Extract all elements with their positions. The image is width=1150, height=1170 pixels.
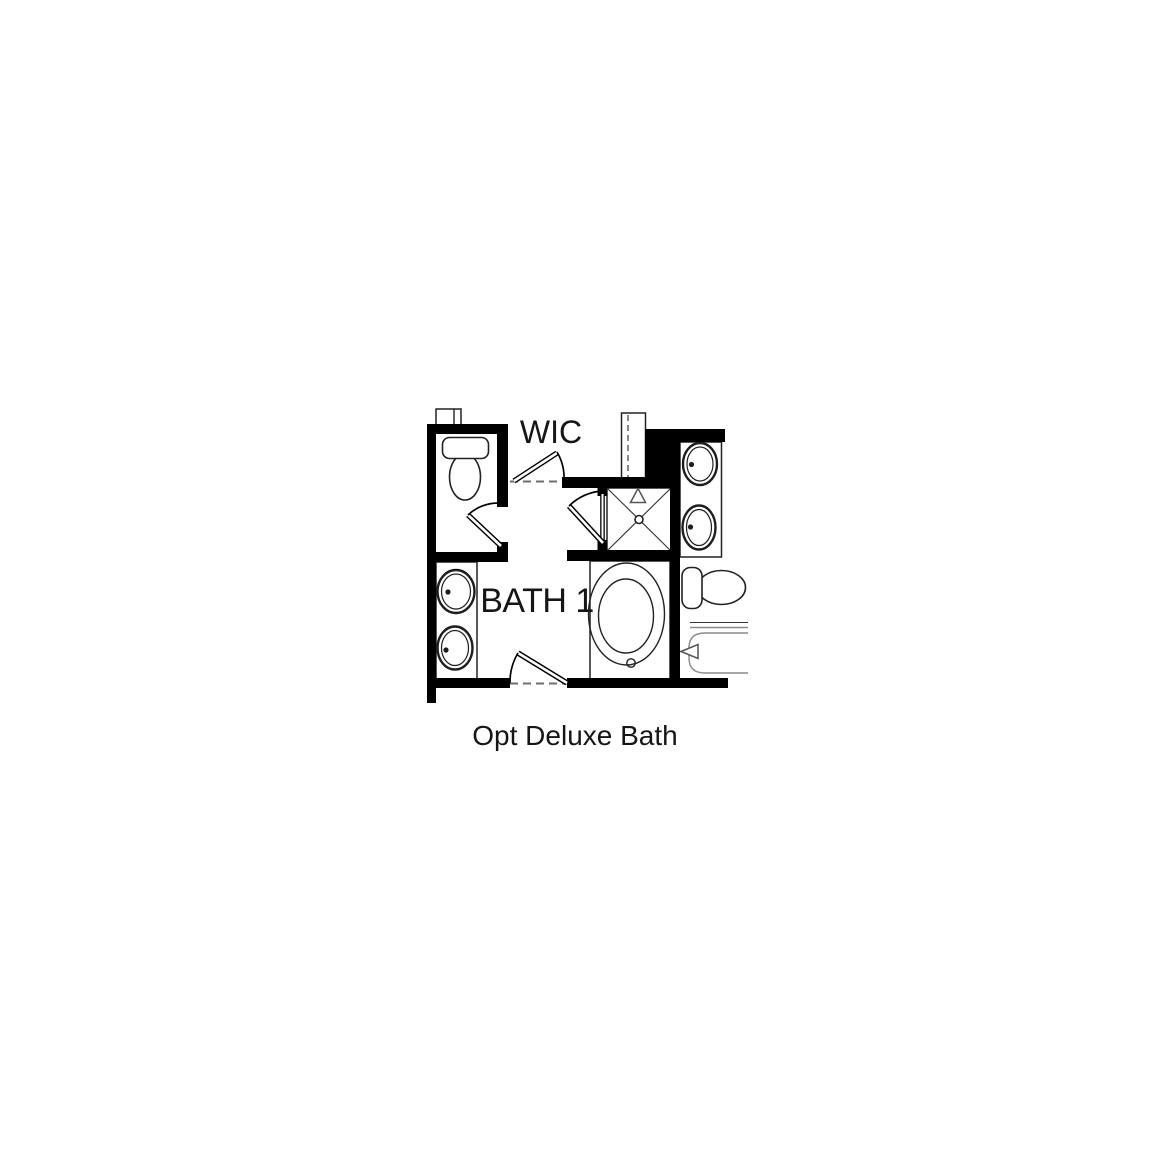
door-shower-glass bbox=[569, 484, 607, 552]
room-label-bath1: BATH 1 bbox=[480, 582, 594, 620]
door-leaf bbox=[569, 506, 603, 543]
vanity-right bbox=[680, 442, 722, 557]
faucet-dot bbox=[443, 647, 448, 652]
door-leaf bbox=[468, 515, 501, 546]
toilet-tank bbox=[682, 568, 702, 609]
wall-bottom-left bbox=[427, 678, 510, 688]
door-wic bbox=[510, 452, 564, 482]
wall-wc-bottom bbox=[427, 552, 508, 562]
door-leaf bbox=[514, 453, 557, 481]
bathtub bbox=[589, 561, 671, 679]
toilet-fixture-wc bbox=[443, 438, 489, 501]
wall-left bbox=[427, 424, 436, 703]
door-leaf bbox=[518, 653, 567, 683]
wall-shower-bottom bbox=[567, 550, 680, 561]
door-swing-arc bbox=[557, 452, 564, 481]
sink bbox=[683, 506, 716, 550]
shower bbox=[607, 488, 671, 551]
toilet-tank bbox=[443, 438, 489, 459]
sink bbox=[683, 443, 717, 485]
wall-stub-top-left bbox=[436, 409, 461, 425]
opening-outline bbox=[622, 413, 646, 479]
sink bbox=[438, 627, 473, 670]
toilet-bowl bbox=[698, 571, 746, 605]
room-label-wic: WIC bbox=[520, 414, 582, 450]
door-swing-arc bbox=[468, 503, 499, 515]
floor-plan-drawing: WIC BATH 1 Opt Deluxe Bath bbox=[0, 0, 1150, 1170]
toilet-fixture-right bbox=[682, 568, 746, 609]
door-bath-entry bbox=[510, 653, 567, 684]
floor-plan-page: WIC BATH 1 Opt Deluxe Bath bbox=[0, 0, 1150, 1170]
stub-outline bbox=[436, 409, 461, 425]
wall-bottom-right bbox=[567, 678, 728, 688]
faucet-dot bbox=[445, 589, 450, 594]
door-swing-arc bbox=[510, 653, 518, 683]
faucet-dot bbox=[689, 462, 694, 467]
wall-top-right-bar bbox=[645, 429, 725, 442]
wall-wc-top bbox=[427, 424, 508, 434]
wall-right-vertical bbox=[670, 486, 680, 688]
shower-drain bbox=[635, 516, 643, 524]
tub-shower-right bbox=[678, 623, 748, 674]
sink bbox=[438, 570, 475, 613]
vanity-left bbox=[436, 562, 477, 679]
cased-opening-top bbox=[622, 413, 646, 479]
wall-wc-right-upper bbox=[497, 424, 508, 507]
toilet-bowl bbox=[450, 454, 481, 500]
plan-caption: Opt Deluxe Bath bbox=[472, 720, 677, 751]
door-water-closet bbox=[468, 503, 501, 546]
faucet-dot bbox=[688, 524, 693, 529]
